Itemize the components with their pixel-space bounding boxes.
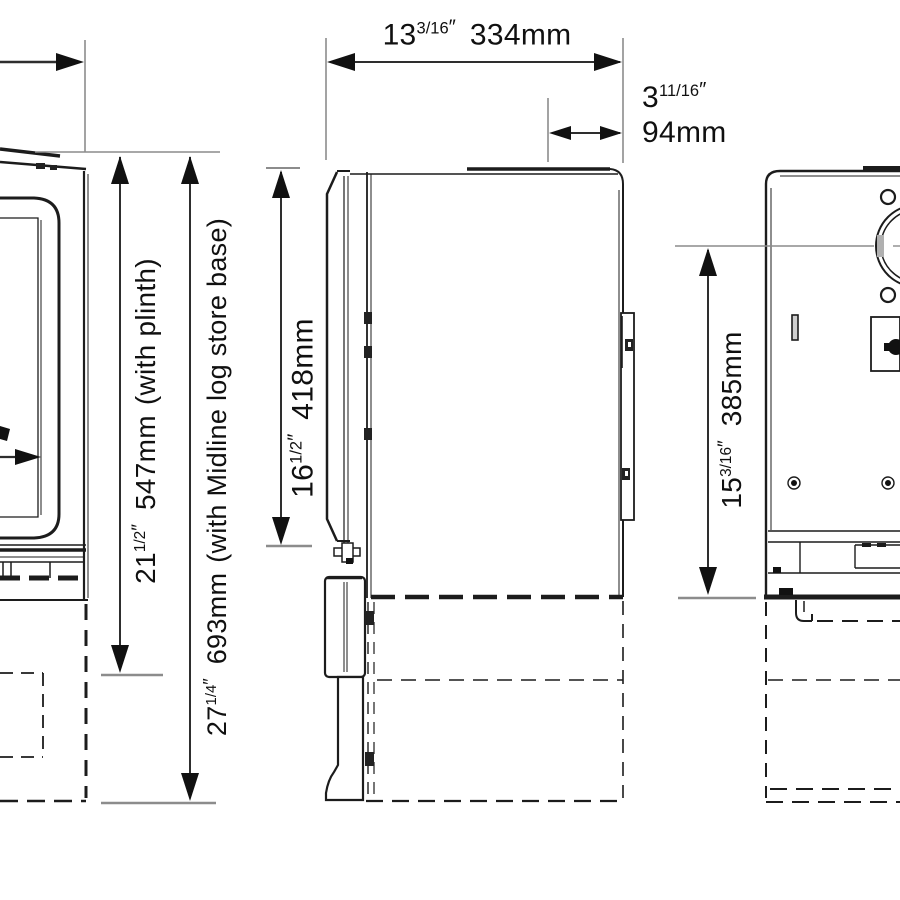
metric-part: 693mm — [202, 573, 232, 665]
inch-mark: ″ — [199, 677, 220, 685]
stove-dimension-diagram: 133/16″334mm 311/16″ 94mm 211/2″547mm(wi… — [0, 0, 900, 900]
fraction-part: 1/2 — [132, 531, 149, 552]
fraction-part: 1/4 — [204, 685, 220, 706]
fraction-part: 11/16 — [659, 82, 699, 100]
fraction-part: 1/2 — [288, 441, 306, 464]
metric-part: 334mm — [470, 19, 572, 52]
dimension-label-door-height: 161/2″418mm — [286, 318, 319, 498]
inches-part: 3 — [642, 81, 659, 114]
dimension-label-height-with-log-store: 271/4″693mm(with Midline log store base) — [201, 218, 231, 736]
inches-part: 16 — [287, 464, 320, 498]
front-view-drawing — [0, 149, 88, 801]
fraction-part: 3/16 — [417, 20, 449, 38]
inch-mark: ″ — [129, 523, 150, 531]
dimension-label-depth-overall: 133/16″334mm — [383, 18, 572, 51]
dimension-label-flue-centre-height: 153/16″385mm — [716, 331, 746, 508]
metric-part: 418mm — [287, 318, 320, 420]
inches-part: 13 — [383, 19, 417, 52]
rear-view-drawing — [764, 168, 900, 802]
inch-mark: ″ — [699, 79, 707, 101]
metric-part: 385mm — [716, 331, 747, 426]
side-view-drawing — [325, 169, 634, 801]
inch-mark: ″ — [449, 17, 457, 39]
dimension-label-height-with-plinth: 211/2″547mm(with plinth) — [130, 258, 160, 584]
dimension-label-flue-offset-imperial: 311/16″ — [642, 80, 707, 113]
fraction-part: 3/16 — [718, 447, 735, 477]
note-part: (with Midline log store base) — [202, 218, 232, 563]
inches-part: 21 — [130, 552, 161, 584]
inch-mark: ″ — [715, 439, 736, 447]
inches-part: 15 — [716, 477, 747, 509]
metric-part: 547mm — [130, 415, 161, 510]
dimension-label-flue-offset-metric: 94mm — [642, 118, 727, 148]
note-part: (with plinth) — [130, 258, 161, 405]
metric-part: 94mm — [642, 116, 727, 149]
inches-part: 27 — [202, 705, 232, 736]
inch-mark: ″ — [285, 433, 307, 441]
